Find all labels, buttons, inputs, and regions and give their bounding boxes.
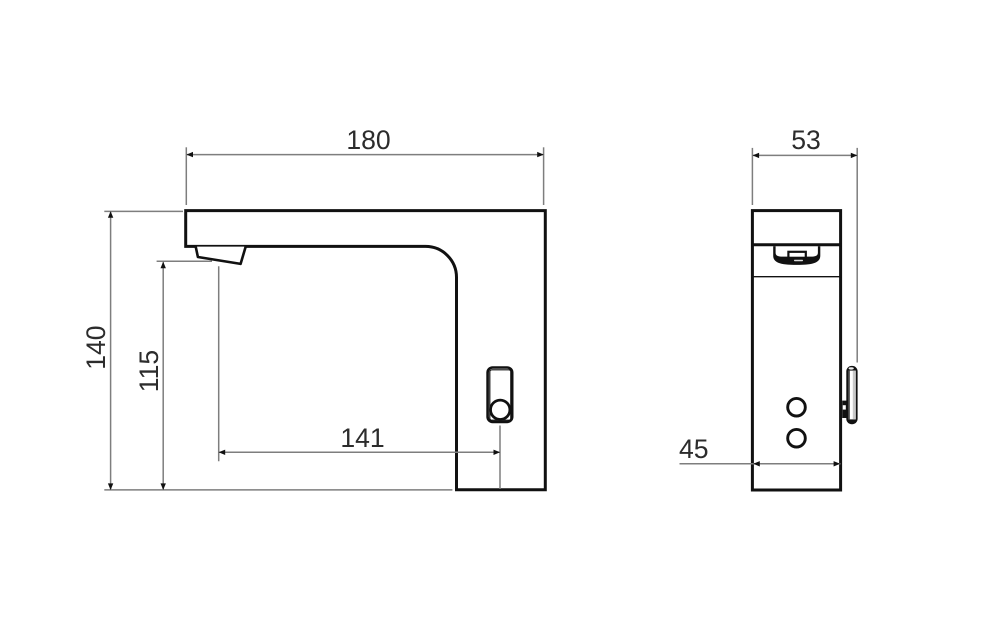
svg-text:45: 45 bbox=[679, 434, 709, 464]
svg-text:180: 180 bbox=[346, 125, 390, 155]
svg-text:140: 140 bbox=[81, 325, 111, 369]
svg-text:141: 141 bbox=[340, 423, 384, 453]
svg-text:53: 53 bbox=[791, 125, 821, 155]
svg-text:115: 115 bbox=[134, 350, 164, 392]
